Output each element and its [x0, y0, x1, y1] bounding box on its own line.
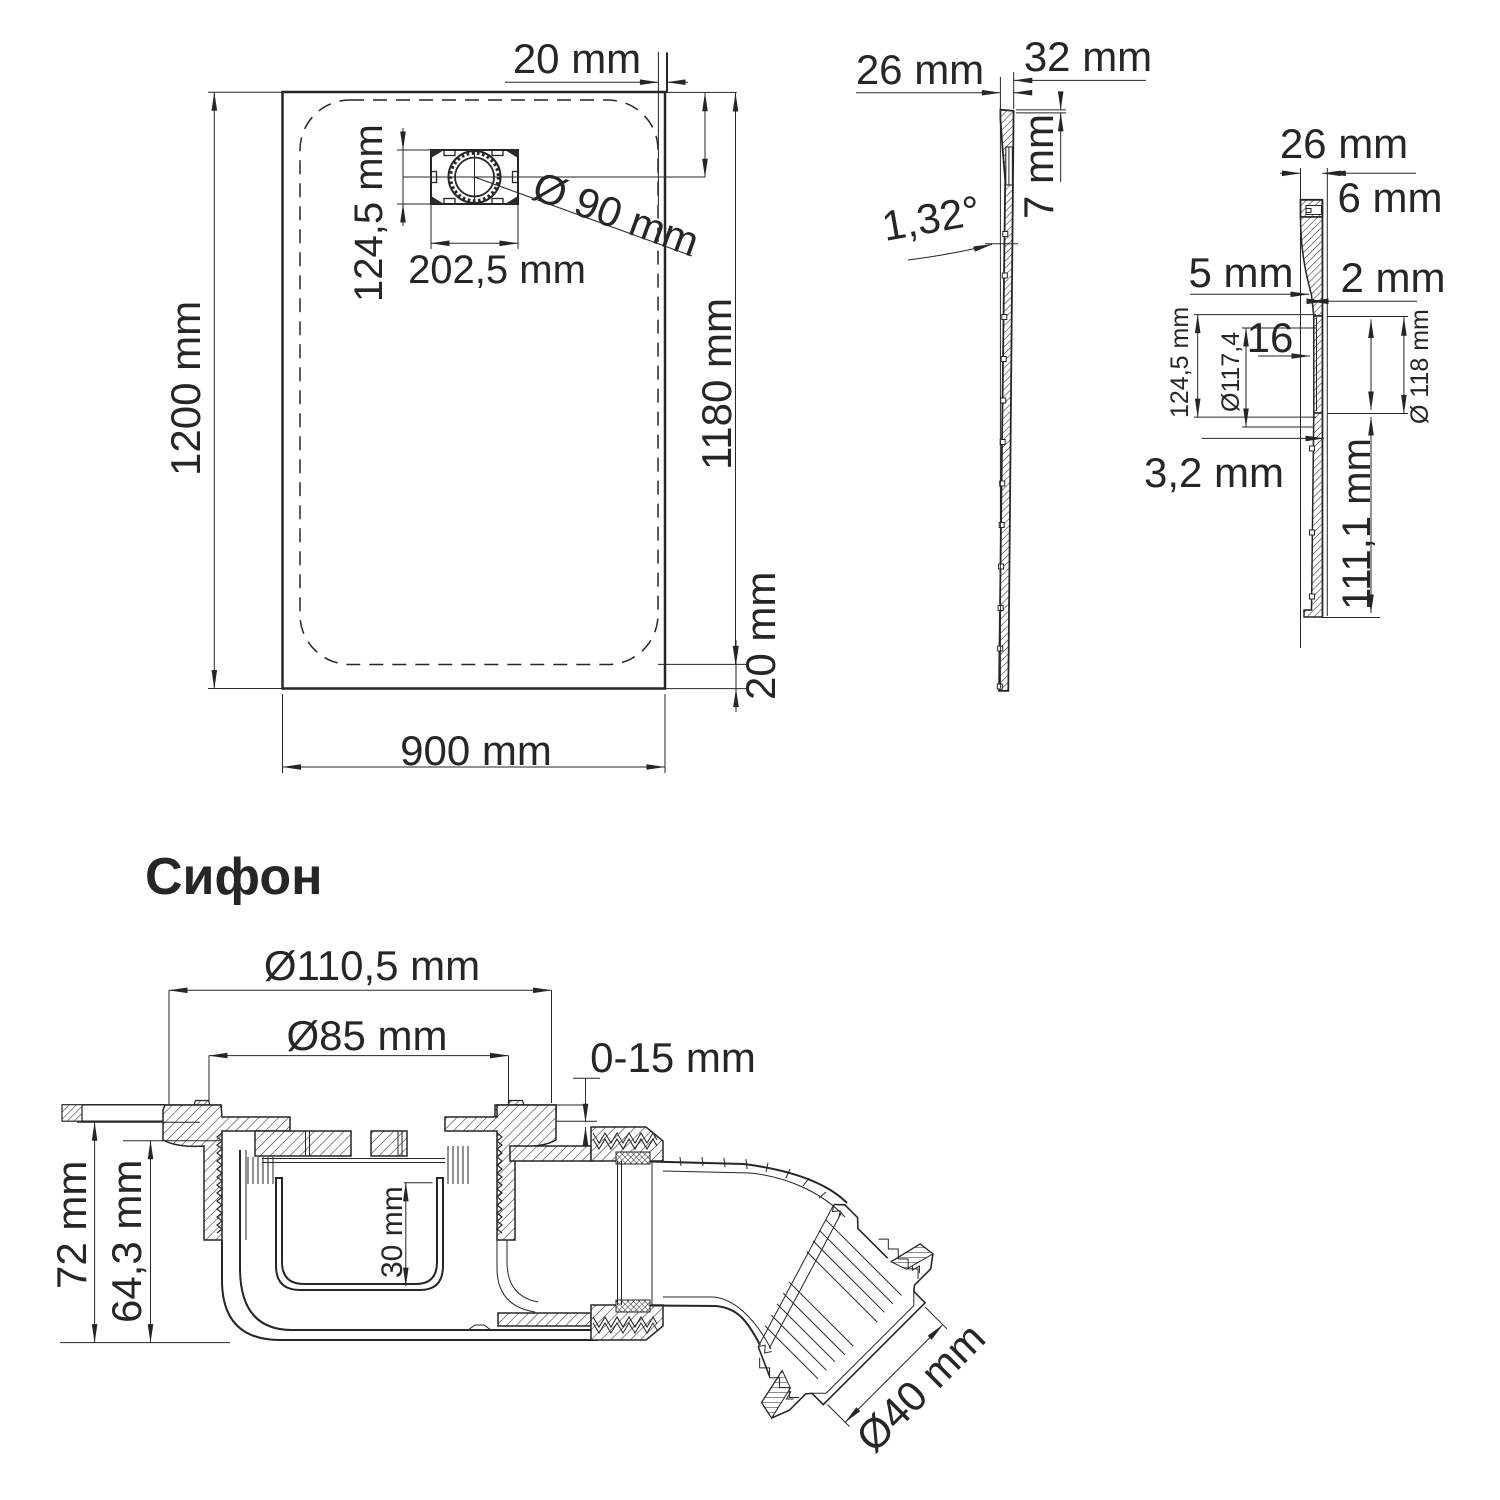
svg-text:2 mm: 2 mm — [1341, 254, 1446, 301]
svg-text:7 mm: 7 mm — [1015, 114, 1062, 219]
svg-text:124,5 mm: 124,5 mm — [1166, 307, 1194, 418]
svg-text:30 mm: 30 mm — [376, 1186, 409, 1278]
svg-text:16: 16 — [1247, 314, 1294, 361]
svg-text:64,3 mm: 64,3 mm — [103, 1160, 150, 1323]
svg-text:900 mm: 900 mm — [400, 727, 552, 774]
svg-text:111,1 mm: 111,1 mm — [1335, 438, 1379, 610]
svg-text:20 mm: 20 mm — [737, 572, 784, 700]
svg-text:26 mm: 26 mm — [1280, 120, 1408, 167]
svg-text:Ø 118 mm: Ø 118 mm — [1406, 309, 1434, 424]
svg-text:124,5 mm: 124,5 mm — [347, 124, 391, 302]
svg-text:1200 mm: 1200 mm — [162, 301, 209, 476]
svg-text:Ø110,5 mm: Ø110,5 mm — [264, 942, 480, 989]
svg-text:0-15 mm: 0-15 mm — [590, 1034, 756, 1081]
svg-text:Ø85 mm: Ø85 mm — [286, 1012, 447, 1059]
svg-text:72 mm: 72 mm — [48, 1161, 95, 1289]
svg-text:6 mm: 6 mm — [1338, 174, 1443, 221]
svg-text:1180 mm: 1180 mm — [693, 298, 740, 470]
svg-text:32 mm: 32 mm — [1024, 33, 1152, 80]
svg-text:202,5 mm: 202,5 mm — [408, 248, 586, 292]
svg-text:Ø117,4: Ø117,4 — [1217, 332, 1245, 412]
svg-text:3,2 mm: 3,2 mm — [1144, 449, 1284, 496]
svg-text:5 mm: 5 mm — [1189, 249, 1294, 296]
svg-text:26 mm: 26 mm — [856, 46, 984, 93]
svg-text:20 mm: 20 mm — [513, 35, 641, 82]
svg-text:Сифон: Сифон — [145, 848, 323, 906]
